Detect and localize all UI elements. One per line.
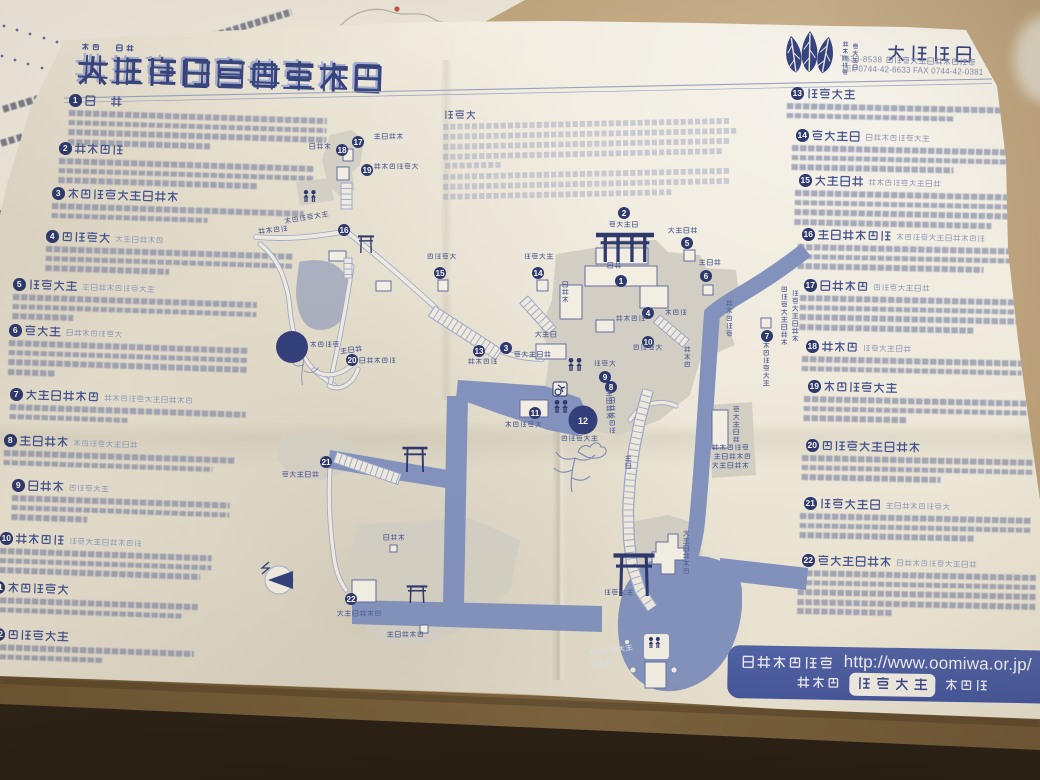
svg-text:22: 22 <box>346 595 356 604</box>
svg-text:6: 6 <box>704 272 709 281</box>
svg-text:19: 19 <box>362 166 372 175</box>
svg-text:5: 5 <box>685 239 690 248</box>
svg-text:2: 2 <box>622 209 627 218</box>
svg-text:3: 3 <box>504 344 509 353</box>
svg-text:11: 11 <box>531 409 540 418</box>
svg-text:17: 17 <box>353 138 363 147</box>
svg-text:21: 21 <box>321 458 331 467</box>
svg-text:4: 4 <box>646 309 651 318</box>
svg-text:16: 16 <box>339 226 349 235</box>
svg-text:9: 9 <box>603 373 608 382</box>
svg-text:13: 13 <box>474 347 484 356</box>
svg-text:18: 18 <box>337 146 347 155</box>
svg-text:15: 15 <box>435 269 445 278</box>
svg-text:12: 12 <box>578 416 588 426</box>
svg-text:1: 1 <box>619 277 624 286</box>
svg-text:14: 14 <box>533 269 543 278</box>
svg-text:20: 20 <box>347 356 357 365</box>
svg-text:7: 7 <box>765 332 770 341</box>
